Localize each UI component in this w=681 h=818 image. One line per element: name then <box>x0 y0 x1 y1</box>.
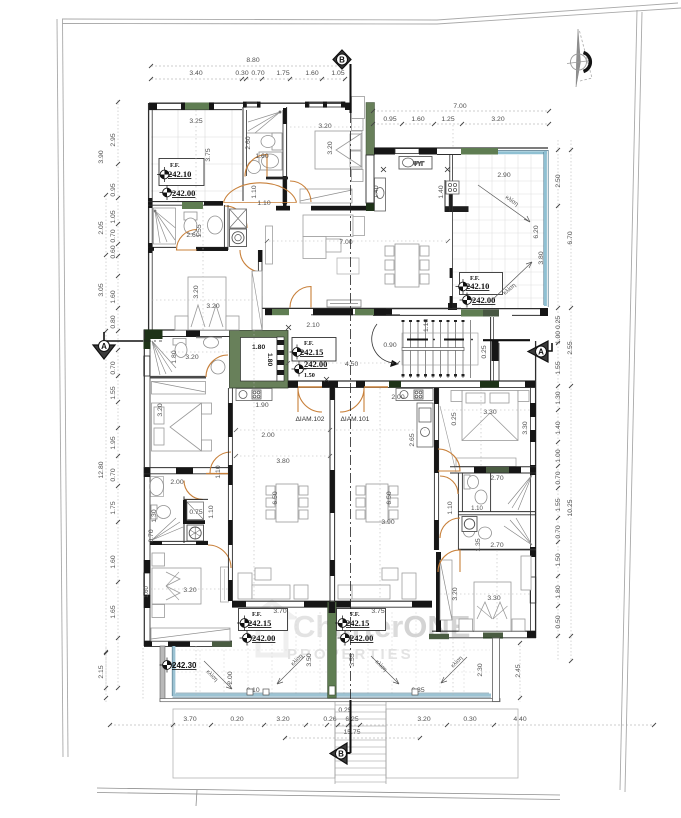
svg-text:6.20: 6.20 <box>533 225 540 238</box>
svg-text:7.00: 7.00 <box>453 103 466 110</box>
svg-text:1.60: 1.60 <box>110 555 117 568</box>
svg-text:0.30: 0.30 <box>463 716 476 723</box>
svg-text:1.60: 1.60 <box>110 290 117 303</box>
svg-text:0.80: 0.80 <box>110 315 117 328</box>
svg-text:1.95: 1.95 <box>110 436 117 449</box>
svg-text:F.F.: F.F. <box>350 611 360 618</box>
svg-text:0.70: 0.70 <box>110 229 117 242</box>
svg-text:242.30: 242.30 <box>172 661 197 670</box>
svg-text:2.45: 2.45 <box>515 664 522 677</box>
svg-text:1.55: 1.55 <box>110 386 117 399</box>
svg-text:2.90: 2.90 <box>497 172 510 179</box>
svg-text:1.35: 1.35 <box>475 538 482 551</box>
svg-text:242.00: 242.00 <box>252 633 275 643</box>
svg-text:3.20: 3.20 <box>417 716 430 723</box>
svg-text:B: B <box>339 56 345 65</box>
svg-text:F.F.: F.F. <box>252 611 262 618</box>
svg-text:3.05: 3.05 <box>98 283 105 296</box>
svg-text:0.25: 0.25 <box>481 345 488 358</box>
svg-text:3.55: 3.55 <box>349 653 356 666</box>
svg-text:0.70: 0.70 <box>110 468 117 481</box>
svg-text:1.60: 1.60 <box>305 70 318 77</box>
svg-text:2.55: 2.55 <box>567 341 574 354</box>
svg-text:3.90: 3.90 <box>98 150 105 163</box>
svg-text:1.10: 1.10 <box>208 505 215 518</box>
svg-text:6.25: 6.25 <box>345 716 358 723</box>
svg-text:6.70: 6.70 <box>567 231 574 244</box>
svg-text:2.95: 2.95 <box>110 133 117 146</box>
svg-text:3.20: 3.20 <box>206 303 219 310</box>
svg-text:B: B <box>338 750 344 759</box>
svg-text:1.10: 1.10 <box>423 319 430 332</box>
svg-text:1.00 0.25: 1.00 0.25 <box>555 316 562 345</box>
svg-text:1.60: 1.60 <box>255 153 268 160</box>
svg-text:1.55: 1.55 <box>555 498 562 511</box>
svg-text:0.70: 0.70 <box>555 471 562 484</box>
svg-text:3.70: 3.70 <box>183 716 196 723</box>
svg-text:1.05: 1.05 <box>110 210 117 223</box>
svg-text:1.10: 1.10 <box>471 506 483 512</box>
svg-text:3.20: 3.20 <box>183 587 196 594</box>
svg-text:4.50: 4.50 <box>345 361 358 368</box>
svg-text:1.00: 1.00 <box>555 449 562 462</box>
svg-text:242.10: 242.10 <box>168 169 191 179</box>
svg-text:242.00: 242.00 <box>304 359 327 369</box>
svg-text:0.95: 0.95 <box>383 116 396 123</box>
svg-text:1.50: 1.50 <box>304 372 315 379</box>
svg-text:10.25: 10.25 <box>567 499 574 516</box>
svg-text:1.10: 1.10 <box>447 501 454 514</box>
svg-text:A: A <box>101 342 107 351</box>
svg-text:3.40: 3.40 <box>189 70 202 77</box>
svg-text:2.00: 2.00 <box>227 671 234 684</box>
svg-text:2.00: 2.00 <box>261 432 274 439</box>
svg-text:1.40: 1.40 <box>438 185 445 198</box>
svg-text:1.55: 1.55 <box>196 224 203 237</box>
svg-text:0.70: 0.70 <box>251 70 264 77</box>
svg-text:1.60: 1.60 <box>411 116 424 123</box>
svg-text:242.10: 242.10 <box>466 281 489 291</box>
svg-text:1.40: 1.40 <box>373 185 380 198</box>
svg-text:1.90: 1.90 <box>255 402 268 409</box>
svg-text:0.70: 0.70 <box>148 529 155 542</box>
svg-text:2.00: 2.00 <box>391 394 404 401</box>
svg-text:0.30: 0.30 <box>235 70 248 77</box>
svg-text:2.70: 2.70 <box>490 475 503 482</box>
svg-text:2.60: 2.60 <box>245 136 252 149</box>
svg-text:F.F.: F.F. <box>170 162 180 169</box>
svg-text:2.50: 2.50 <box>555 174 562 187</box>
svg-text:3.70: 3.70 <box>273 608 286 615</box>
svg-text:0.50: 0.50 <box>555 615 562 628</box>
svg-text:242.00: 242.00 <box>350 633 373 643</box>
svg-text:3.20: 3.20 <box>193 285 200 298</box>
svg-text:A: A <box>538 348 544 357</box>
svg-text:1.75: 1.75 <box>276 70 289 77</box>
svg-text:3.20: 3.20 <box>318 123 331 130</box>
svg-text:3.80: 3.80 <box>276 458 289 465</box>
svg-text:1.25: 1.25 <box>441 116 454 123</box>
svg-text:3.75: 3.75 <box>371 608 384 615</box>
svg-text:0.60: 0.60 <box>110 245 117 258</box>
svg-text:1.50: 1.50 <box>555 553 562 566</box>
svg-text:1.30: 1.30 <box>151 509 158 522</box>
svg-text:3.20: 3.20 <box>157 403 164 416</box>
svg-text:0.25: 0.25 <box>451 412 458 425</box>
svg-text:F.F.: F.F. <box>304 340 314 347</box>
svg-text:1.65: 1.65 <box>110 605 117 618</box>
svg-text:ΔΙΑΜ.102: ΔΙΑΜ.102 <box>296 416 325 423</box>
svg-text:1.05: 1.05 <box>331 70 344 77</box>
svg-text:2.05: 2.05 <box>98 221 105 234</box>
svg-text:ΨΥΓ: ΨΥΓ <box>413 162 424 168</box>
svg-text:ΔΙΑΜ.101: ΔΙΑΜ.101 <box>341 416 370 423</box>
svg-text:1.40: 1.40 <box>555 421 562 434</box>
svg-text:15.75: 15.75 <box>343 729 360 736</box>
svg-text:3.30: 3.30 <box>487 595 500 602</box>
svg-text:2.70: 2.70 <box>490 542 503 549</box>
svg-text:0.70: 0.70 <box>555 525 562 538</box>
svg-text:4.40: 4.40 <box>513 716 526 723</box>
svg-text:1.10: 1.10 <box>257 200 270 207</box>
svg-text:3.20: 3.20 <box>491 116 504 123</box>
svg-text:3.90: 3.90 <box>381 519 394 526</box>
svg-text:3.50: 3.50 <box>306 653 313 666</box>
svg-text:1.80: 1.80 <box>266 353 273 366</box>
svg-text:8.80: 8.80 <box>246 57 259 64</box>
svg-text:1.80: 1.80 <box>555 585 562 598</box>
svg-text:1.75: 1.75 <box>110 501 117 514</box>
svg-text:1.30: 1.30 <box>555 391 562 404</box>
svg-text:1.10: 1.10 <box>251 185 258 198</box>
svg-text:6.50: 6.50 <box>386 491 393 504</box>
svg-text:2.30: 2.30 <box>477 663 484 676</box>
svg-text:0.90: 0.90 <box>383 342 396 349</box>
svg-text:2.10: 2.10 <box>306 322 319 329</box>
svg-text:3.75: 3.75 <box>205 148 212 161</box>
svg-text:2.15: 2.15 <box>98 665 105 678</box>
svg-text:2.00: 2.00 <box>170 479 183 486</box>
svg-text:1.55: 1.55 <box>555 361 562 374</box>
svg-text:0.20: 0.20 <box>230 716 243 723</box>
svg-text:1.10: 1.10 <box>215 465 222 478</box>
svg-text:3.20: 3.20 <box>276 716 289 723</box>
svg-text:3.20: 3.20 <box>327 141 334 154</box>
svg-text:242.00: 242.00 <box>172 188 195 198</box>
svg-text:12.80: 12.80 <box>98 461 105 478</box>
svg-text:1.60: 1.60 <box>144 586 150 598</box>
svg-text:2.65: 2.65 <box>409 433 416 446</box>
svg-text:0.95: 0.95 <box>110 183 117 196</box>
svg-text:0.75: 0.75 <box>189 509 202 516</box>
svg-text:3.30: 3.30 <box>522 421 529 434</box>
svg-text:0.70: 0.70 <box>110 361 117 374</box>
svg-text:3.20: 3.20 <box>185 354 198 361</box>
svg-text:6.50: 6.50 <box>272 491 279 504</box>
